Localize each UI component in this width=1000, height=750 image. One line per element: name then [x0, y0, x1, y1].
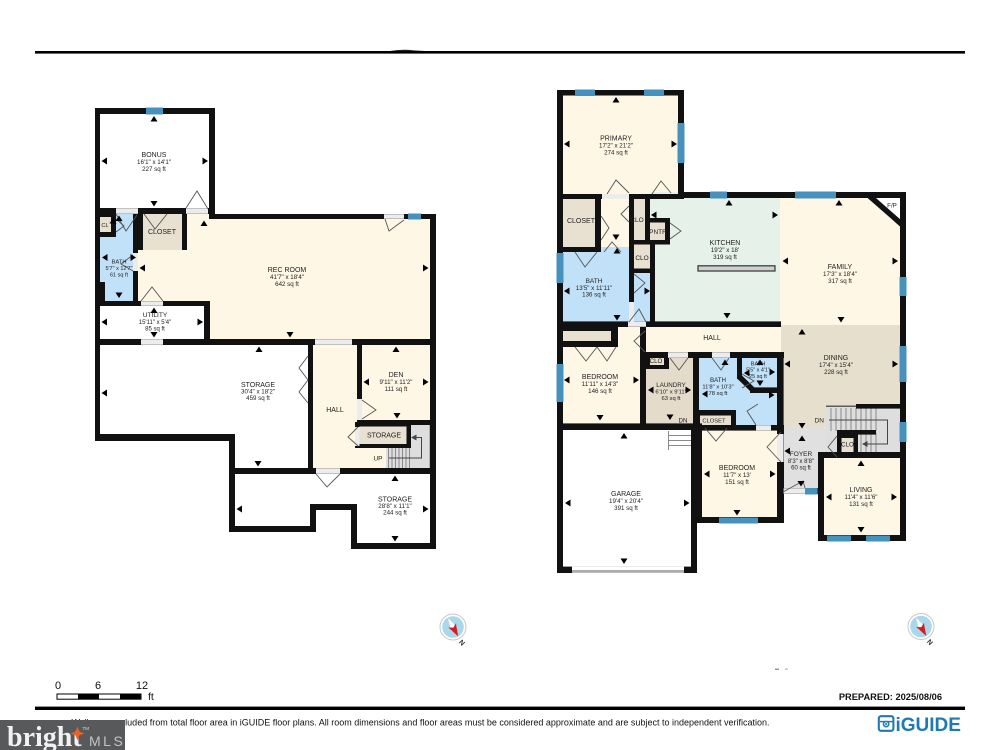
- svg-text:8'3" x 8'8": 8'3" x 8'8": [788, 459, 814, 465]
- svg-text:459 sq ft: 459 sq ft: [246, 395, 270, 402]
- svg-text:CLO: CLO: [630, 217, 643, 224]
- svg-text:Walls are excluded from total: Walls are excluded from total floor area…: [72, 718, 770, 728]
- svg-text:BEDROOM: BEDROOM: [719, 465, 755, 472]
- svg-text:11'4" x 11'6": 11'4" x 11'6": [844, 494, 877, 501]
- svg-text:DEN: DEN: [389, 372, 404, 379]
- svg-text:131 sq ft: 131 sq ft: [849, 501, 873, 508]
- svg-text:228 sq ft: 228 sq ft: [824, 369, 848, 376]
- svg-text:HALL: HALL: [326, 407, 344, 414]
- svg-text:PRIMARY: PRIMARY: [600, 136, 632, 143]
- svg-text:ft: ft: [148, 691, 154, 703]
- svg-text:PNTR: PNTR: [649, 229, 667, 236]
- svg-text:244 sq ft: 244 sq ft: [383, 510, 407, 517]
- svg-text:UP: UP: [373, 456, 382, 463]
- svg-text:319 sq ft: 319 sq ft: [713, 254, 737, 261]
- svg-text:11'7" x 13': 11'7" x 13': [723, 472, 751, 479]
- svg-text:111 sq ft: 111 sq ft: [385, 386, 408, 393]
- svg-text:146 sq ft: 146 sq ft: [588, 388, 612, 395]
- svg-text:BATH: BATH: [111, 260, 126, 266]
- svg-text:11'8" x 10'3": 11'8" x 10'3": [702, 385, 733, 391]
- svg-text:5'7" x 12'7": 5'7" x 12'7": [105, 266, 132, 272]
- svg-text:41'7" x 18'4": 41'7" x 18'4": [270, 274, 304, 281]
- svg-text:17'4" x 15'4": 17'4" x 15'4": [819, 362, 853, 369]
- svg-text:19'4" x 20'4": 19'4" x 20'4": [609, 498, 643, 505]
- svg-text:CLOSET: CLOSET: [702, 419, 726, 425]
- svg-text:17'2" x 21'2": 17'2" x 21'2": [599, 143, 633, 150]
- svg-text:STORAGE: STORAGE: [367, 433, 401, 440]
- svg-text:PREPARED: 2025/08/06: PREPARED: 2025/08/06: [839, 692, 942, 702]
- svg-text:642 sq ft: 642 sq ft: [275, 281, 299, 288]
- svg-text:6: 6: [95, 680, 101, 692]
- svg-text:LIVING: LIVING: [850, 487, 873, 494]
- svg-text:61 sq ft: 61 sq ft: [110, 272, 129, 278]
- svg-text:CLOSET: CLOSET: [567, 218, 596, 225]
- svg-text:227 sq ft: 227 sq ft: [142, 166, 166, 173]
- svg-text:CLO: CLO: [841, 442, 854, 449]
- svg-text:25 sq ft: 25 sq ft: [749, 374, 767, 380]
- svg-text:REC ROOM: REC ROOM: [268, 267, 307, 274]
- svg-text:bright: bright: [7, 722, 82, 750]
- svg-text:151 sq ft: 151 sq ft: [725, 479, 749, 486]
- svg-text:BATH: BATH: [710, 377, 726, 384]
- svg-text:19'2" x 18': 19'2" x 18': [711, 247, 739, 254]
- svg-text:F/P: F/P: [887, 203, 897, 210]
- svg-text:iGUIDE: iGUIDE: [896, 715, 961, 736]
- svg-text:85 sq ft: 85 sq ft: [145, 327, 165, 333]
- svg-text:9'11" x 11'2": 9'11" x 11'2": [379, 379, 412, 386]
- svg-text:FOYER: FOYER: [790, 451, 813, 458]
- svg-text:11'11" x 14'3": 11'11" x 14'3": [582, 381, 618, 388]
- svg-text:0: 0: [55, 680, 61, 692]
- svg-text:6'10" x 9'11": 6'10" x 9'11": [655, 390, 686, 396]
- svg-text:CLOSET: CLOSET: [148, 229, 177, 236]
- svg-text:136 sq ft: 136 sq ft: [582, 292, 606, 299]
- svg-text:12: 12: [136, 680, 148, 692]
- svg-text:60 sq ft: 60 sq ft: [791, 466, 811, 472]
- svg-text:BEDROOM: BEDROOM: [582, 374, 618, 381]
- svg-text:CLO: CLO: [635, 255, 648, 262]
- svg-text:16'1" x 14'1": 16'1" x 14'1": [137, 159, 171, 166]
- svg-text:5'5" x 4'1": 5'5" x 4'1": [746, 368, 770, 374]
- svg-text:CL: CL: [101, 223, 108, 229]
- svg-text:KITCHEN: KITCHEN: [710, 240, 741, 247]
- svg-text:MLS: MLS: [89, 733, 125, 749]
- svg-text:HALL: HALL: [703, 335, 721, 342]
- svg-text:GARAGE: GARAGE: [611, 491, 641, 498]
- svg-text:BONUS: BONUS: [142, 152, 167, 159]
- svg-text:317 sq ft: 317 sq ft: [828, 278, 852, 285]
- svg-text:DINING: DINING: [824, 355, 849, 362]
- svg-text:CLO: CLO: [650, 358, 663, 365]
- svg-text:DN: DN: [679, 418, 688, 425]
- svg-text:FAMILY: FAMILY: [828, 264, 853, 271]
- svg-text:UTILITY: UTILITY: [143, 312, 168, 319]
- svg-text:274 sq ft: 274 sq ft: [604, 150, 628, 157]
- svg-text:63 sq ft: 63 sq ft: [661, 396, 680, 402]
- svg-text:391 sq ft: 391 sq ft: [614, 505, 638, 512]
- svg-text:17'3" x 18'4": 17'3" x 18'4": [823, 271, 857, 278]
- svg-text:DN: DN: [815, 418, 825, 425]
- svg-text:LAUNDRY: LAUNDRY: [656, 382, 685, 389]
- svg-text:TM: TM: [83, 726, 90, 731]
- svg-text:78 sq ft: 78 sq ft: [708, 391, 727, 397]
- svg-text:15'11" x 5'4": 15'11" x 5'4": [139, 320, 171, 326]
- svg-text:BATH: BATH: [751, 362, 766, 368]
